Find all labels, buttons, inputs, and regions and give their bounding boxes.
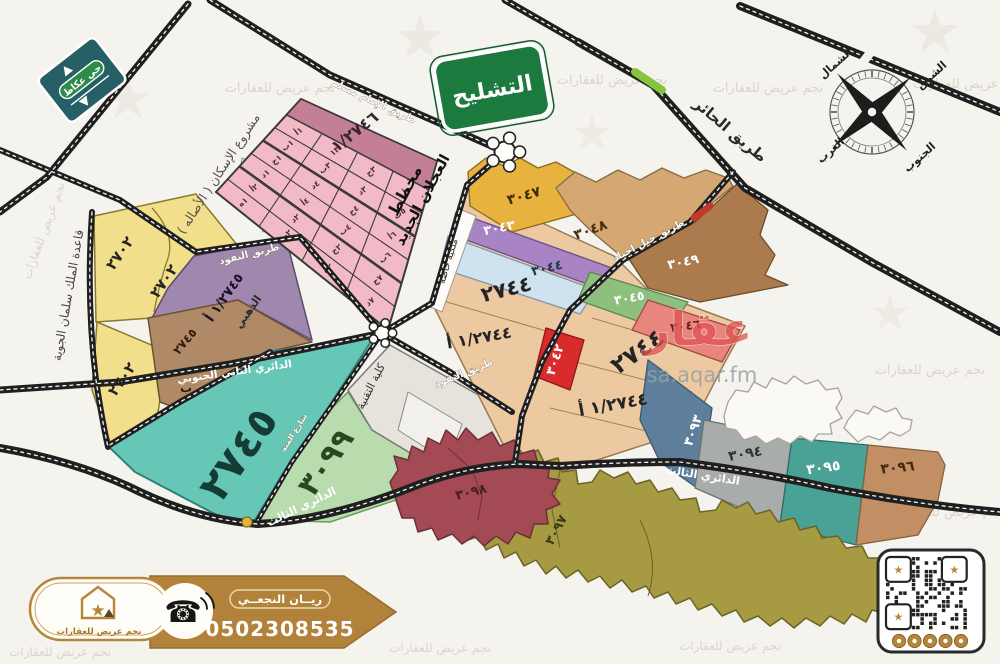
- qr-finder-star-icon: ★: [893, 563, 903, 576]
- aqar-url-text: sa.aqar.fm: [647, 363, 758, 387]
- qr-module: [933, 622, 937, 626]
- qr-module: [951, 617, 955, 621]
- qr-module: [933, 587, 937, 591]
- qr-module: [925, 561, 929, 565]
- aqar-watermark: عقار sa.aqar.fm: [642, 302, 758, 387]
- qr-module: [916, 613, 920, 617]
- roundabout-petal: [487, 155, 499, 167]
- agency-watermark: نجم عريض للعقارات: [875, 363, 986, 378]
- aqar-logo-text: عقار: [642, 302, 752, 356]
- qr-module: [912, 583, 916, 587]
- qr-module: [946, 596, 950, 600]
- qr-module: [925, 613, 929, 617]
- agent-name-text: ريــان النجعــي: [238, 592, 322, 606]
- qr-module: [933, 596, 937, 600]
- agency-star-icon: ★: [90, 601, 105, 621]
- qr-module: [890, 587, 894, 591]
- qr-module: [933, 570, 937, 574]
- roundabout-petal: [369, 335, 378, 344]
- qr-module: [916, 566, 920, 570]
- road-dot-marker: [242, 517, 252, 527]
- phone-icon: ☎: [164, 595, 201, 630]
- star-watermark-icon: ★: [868, 284, 913, 342]
- qr-module: [938, 557, 942, 561]
- qr-module: [938, 583, 942, 587]
- qr-module: [916, 626, 920, 630]
- qr-module: [942, 604, 946, 608]
- qr-module: [916, 600, 920, 604]
- qr-module: [916, 591, 920, 595]
- qr-module: [929, 570, 933, 574]
- qr-module: [929, 583, 933, 587]
- qr-module: [920, 596, 924, 600]
- qr-module: [929, 579, 933, 583]
- qr-module: [946, 600, 950, 604]
- roundabout-petal: [514, 146, 526, 158]
- roundabout-petal: [381, 339, 390, 348]
- qr-module: [916, 596, 920, 600]
- qr-module: [925, 600, 929, 604]
- qr-module: [920, 622, 924, 626]
- qr-module: [912, 561, 916, 565]
- qr-module: [938, 579, 942, 583]
- qr-module: [951, 626, 955, 630]
- qr-module: [942, 583, 946, 587]
- qr-finder-star-icon: ★: [893, 611, 903, 624]
- qr-module: [946, 604, 950, 608]
- qr-module: [920, 613, 924, 617]
- qr-social-icon-dot: [959, 639, 963, 643]
- qr-module: [929, 574, 933, 578]
- qr-module: [963, 622, 967, 626]
- roundabout-petal: [381, 319, 390, 328]
- qr-module: [925, 570, 929, 574]
- qr-module: [916, 604, 920, 608]
- qr-module: [963, 613, 967, 617]
- qr-module: [959, 600, 963, 604]
- qr-module: [955, 613, 959, 617]
- agency-watermark: نجم عريض للعقارات: [225, 81, 336, 96]
- qr-module: [942, 622, 946, 626]
- qr-social-icon-dot: [912, 639, 916, 643]
- qr-module: [920, 617, 924, 621]
- contact-banner: ★ نجم عريض للعقارات ☎ ريــان النجعــي 05…: [30, 576, 396, 648]
- qr-module: [929, 596, 933, 600]
- qr-module: [929, 587, 933, 591]
- agency-watermark: نجم عريض للعقارات: [389, 641, 491, 656]
- qr-module: [925, 591, 929, 595]
- label-2745b-letter: ب: [180, 381, 192, 395]
- star-watermark-icon: ★: [570, 104, 615, 162]
- qr-module: [916, 557, 920, 561]
- qr-module: [895, 600, 899, 604]
- qr-module: [912, 574, 916, 578]
- qr-module: [959, 604, 963, 608]
- qr-module: [929, 613, 933, 617]
- qr-module: [929, 622, 933, 626]
- qr-module: [916, 570, 920, 574]
- qr-module: [951, 583, 955, 587]
- roundabout-petal: [504, 160, 516, 172]
- qr-module: [955, 617, 959, 621]
- phone-number-text: 0502308535: [205, 617, 354, 641]
- qr-module: [912, 626, 916, 630]
- qr-module: [925, 579, 929, 583]
- qr-module: [903, 591, 907, 595]
- qr-module: [955, 626, 959, 630]
- qr-module: [933, 617, 937, 621]
- qr-module: [963, 609, 967, 613]
- qr-code-block: ★★★: [878, 550, 984, 652]
- qr-module: [920, 604, 924, 608]
- roundabout-petal: [487, 137, 499, 149]
- qr-module: [929, 626, 933, 630]
- qr-social-icons: [892, 634, 967, 647]
- plot-map-screenshot: نجم عريض للعقارات نجم عريض للعقارات نجم …: [0, 0, 1000, 664]
- qr-finder-star-icon: ★: [949, 563, 959, 576]
- qr-social-icon-dot: [943, 639, 947, 643]
- qr-module: [933, 613, 937, 617]
- qr-module: [925, 574, 929, 578]
- qr-module: [959, 591, 963, 595]
- qr-module: [938, 604, 942, 608]
- agency-name-text: نجم عريض للعقارات: [57, 627, 142, 637]
- roundabout-petal: [504, 132, 516, 144]
- qr-module: [899, 591, 903, 595]
- qr-module: [916, 609, 920, 613]
- qr-module: [959, 587, 963, 591]
- roundabout-petal: [369, 323, 378, 332]
- qr-module: [938, 591, 942, 595]
- qr-module: [912, 579, 916, 583]
- qr-module: [912, 613, 916, 617]
- qr-module: [933, 561, 937, 565]
- qr-module: [951, 591, 955, 595]
- star-watermark-icon: ★: [908, 0, 962, 67]
- qr-module: [886, 591, 890, 595]
- qr-module: [963, 587, 967, 591]
- roundabout-petal: [388, 329, 397, 338]
- qr-social-icon-dot: [928, 639, 932, 643]
- agency-watermark: نجم عريض للعقارات: [713, 81, 824, 96]
- qr-module: [886, 583, 890, 587]
- map-canvas: نجم عريض للعقارات نجم عريض للعقارات نجم …: [0, 0, 1000, 664]
- qr-module: [912, 557, 916, 561]
- qr-social-icon-dot: [897, 639, 901, 643]
- qr-module: [942, 600, 946, 604]
- qr-module: [895, 596, 899, 600]
- qr-module: [886, 596, 890, 600]
- qr-module: [912, 609, 916, 613]
- qr-module: [912, 570, 916, 574]
- qr-module: [942, 609, 946, 613]
- agency-watermark: نجم عريض للعقارات: [679, 639, 781, 654]
- qr-module: [942, 587, 946, 591]
- qr-module: [963, 626, 967, 630]
- qr-module: [963, 617, 967, 621]
- qr-module: [946, 587, 950, 591]
- qr-module: [912, 587, 916, 591]
- qr-module: [925, 583, 929, 587]
- agency-watermark: نجم عريض للعقارات: [9, 645, 111, 660]
- qr-module: [955, 604, 959, 608]
- qr-module: [916, 574, 920, 578]
